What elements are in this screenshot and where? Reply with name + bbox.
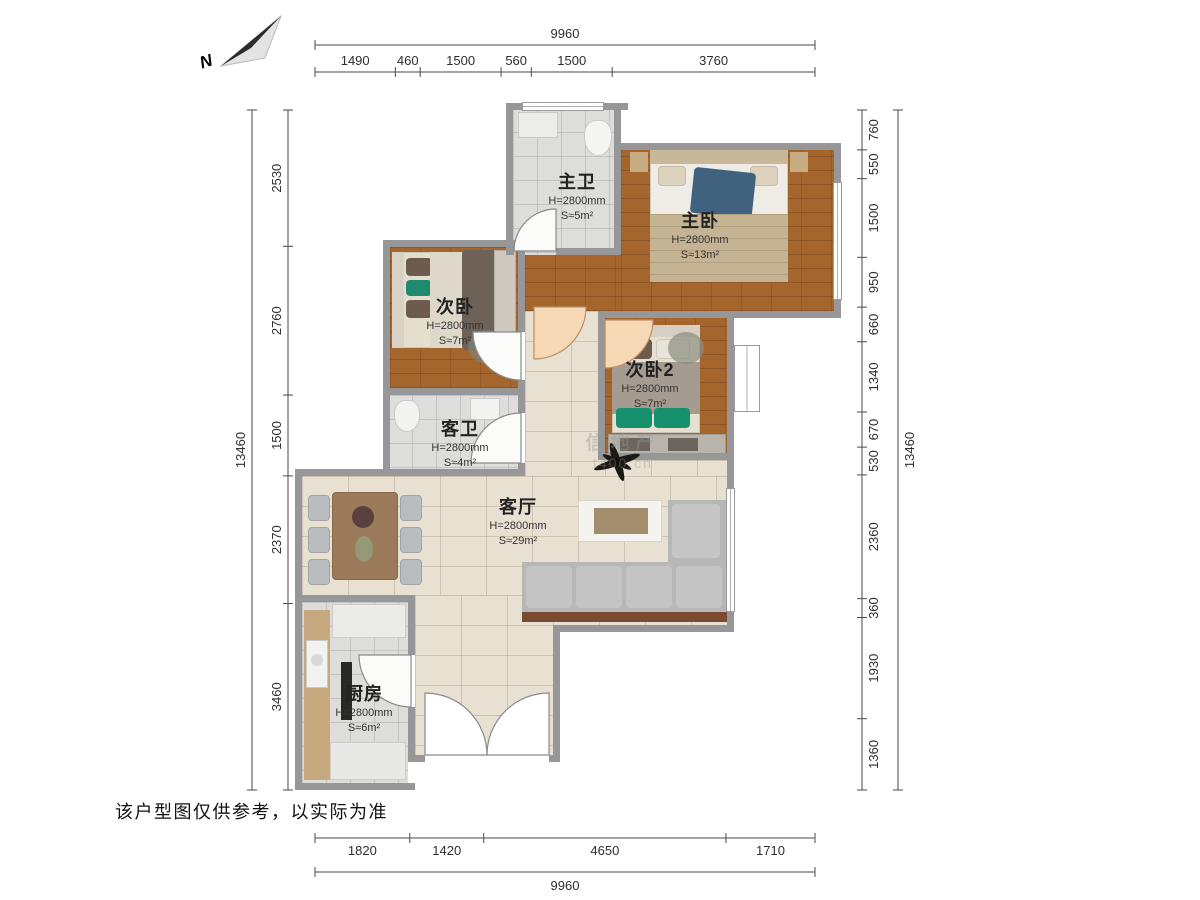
- wall: [556, 248, 621, 255]
- bedroom-3-teal-cushion: [654, 408, 690, 428]
- bedroom-2-plant: [468, 330, 508, 364]
- dimension-value: 760: [866, 119, 881, 141]
- dimension-value: 560: [505, 53, 527, 68]
- dimension-value: 670: [866, 419, 881, 441]
- dimension-value: 9960: [551, 26, 580, 41]
- dimension-value: 1420: [432, 843, 461, 858]
- tv-rug: [594, 508, 648, 534]
- wall: [295, 469, 302, 602]
- dimension-value: 2370: [269, 525, 284, 554]
- wall: [553, 625, 560, 762]
- entry-hall-floor: [415, 625, 553, 755]
- guest-bath-sink: [470, 398, 500, 420]
- table-plant: [355, 536, 373, 562]
- wall: [518, 380, 525, 413]
- wall: [598, 453, 734, 460]
- dimension-value: 2760: [269, 306, 284, 335]
- kitchen-stove: [341, 662, 352, 720]
- master-bed-headboard: [650, 150, 788, 164]
- bay-window: [734, 345, 760, 412]
- dimension-value: 2530: [269, 164, 284, 193]
- wall: [506, 248, 514, 255]
- window: [833, 182, 842, 300]
- dimension-value: 360: [866, 597, 881, 619]
- dimension-value: 530: [866, 450, 881, 472]
- dimension-value: 460: [397, 53, 419, 68]
- dimension-value: 9960: [551, 878, 580, 893]
- table-centerpiece: [352, 506, 374, 528]
- master-bath-vanity: [518, 112, 558, 138]
- floor-plan-canvas: N 主卫 H=2800mm S≈5m² 主卧 H=2800mm S≈13m² 次…: [0, 0, 1200, 900]
- master-bed-blanket: [650, 214, 788, 282]
- dimension-value: 660: [866, 314, 881, 336]
- dimension-value: 13460: [233, 432, 248, 468]
- dimension-value: 1490: [341, 53, 370, 68]
- master-bed-pillow: [658, 166, 686, 186]
- sink-basin: [311, 654, 323, 666]
- bedroom-3-blanket: [612, 362, 700, 414]
- sofa-chaise-cushion: [672, 504, 720, 558]
- bedroom-3-pillow: [618, 339, 652, 359]
- wall: [598, 318, 605, 460]
- wall: [295, 595, 415, 602]
- dimension-value: 1500: [557, 53, 586, 68]
- dimension-value: 1500: [866, 204, 881, 233]
- wall: [295, 602, 302, 790]
- sofa-cushion: [676, 566, 722, 608]
- dimension-value: 13460: [902, 432, 917, 468]
- wall: [598, 311, 734, 318]
- dimension-value: 1340: [866, 362, 881, 391]
- kitchen-cabinet: [332, 604, 406, 638]
- dimension-value: 1820: [348, 843, 377, 858]
- wall: [295, 783, 415, 790]
- dining-chair: [400, 527, 422, 553]
- nightstand: [630, 152, 648, 172]
- wall: [383, 240, 390, 476]
- wall: [295, 469, 525, 476]
- corridor-floor: [525, 311, 605, 476]
- wall: [383, 388, 525, 395]
- bedroom-2-pillow: [406, 300, 432, 318]
- wall: [614, 103, 621, 255]
- bedroom-2-pillow: [406, 258, 432, 276]
- dimension-value: 1930: [866, 654, 881, 683]
- kitchen-counter: [304, 610, 330, 780]
- bedroom-2-pillow-teal: [406, 280, 432, 296]
- dining-chair: [308, 559, 330, 585]
- bedroom-3-teal-cushion: [616, 408, 652, 428]
- dimension-value: 1500: [269, 421, 284, 450]
- nightstand: [790, 152, 808, 172]
- wall: [408, 707, 415, 762]
- dining-chair: [308, 495, 330, 521]
- living-strip-floor: [605, 460, 727, 476]
- sofa-cushion: [526, 566, 572, 608]
- wall: [621, 143, 841, 150]
- master-bed-blue-blanket: [690, 167, 756, 219]
- sofa-cushion: [576, 566, 622, 608]
- dining-chair: [400, 559, 422, 585]
- wall: [734, 311, 841, 318]
- dining-chair: [400, 495, 422, 521]
- window: [522, 102, 604, 111]
- master-bath-toilet: [584, 120, 612, 156]
- north-arrow-icon: [221, 16, 281, 66]
- bedroom-3-plant: [668, 332, 704, 364]
- wall: [553, 625, 734, 632]
- north-label: N: [197, 51, 215, 74]
- bedroom-2-blanket: [430, 252, 464, 348]
- kitchen-cabinet: [330, 742, 406, 780]
- sofa-cushion: [626, 566, 672, 608]
- bedroom-2-headboard: [392, 252, 404, 348]
- dimension-value: 1500: [446, 53, 475, 68]
- wall: [506, 103, 513, 255]
- wall: [518, 240, 525, 332]
- disclaimer-text: 该户型图仅供参考，以实际为准: [115, 798, 388, 824]
- wall: [408, 755, 425, 762]
- dimension-value: 3760: [699, 53, 728, 68]
- master-bedroom-passage-floor: [525, 255, 621, 311]
- dimension-value: 1360: [866, 740, 881, 769]
- guest-bath-toilet: [394, 400, 420, 432]
- window: [726, 488, 735, 612]
- dimension-value: 950: [866, 271, 881, 293]
- dimension-value: 550: [866, 153, 881, 175]
- dimension-value: 2360: [866, 522, 881, 551]
- wall: [408, 602, 415, 655]
- dimension-value: 1710: [756, 843, 785, 858]
- dimension-value: 4650: [590, 843, 619, 858]
- wall: [383, 240, 525, 247]
- bedroom-2-wardrobe: [494, 250, 516, 336]
- wardrobe-item: [668, 438, 698, 451]
- dimension-value: 3460: [269, 682, 284, 711]
- wardrobe-item: [620, 438, 650, 451]
- dining-chair: [308, 527, 330, 553]
